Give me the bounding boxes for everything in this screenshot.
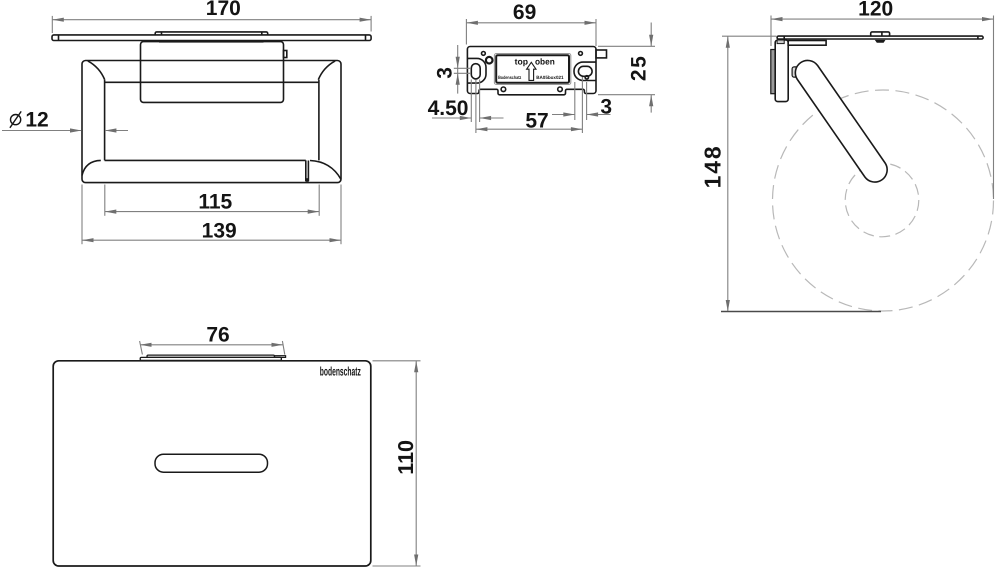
svg-text:12: 12 <box>25 109 48 132</box>
svg-text:bodenschatz: bodenschatz <box>320 365 361 379</box>
svg-text:57: 57 <box>525 110 548 133</box>
svg-text:148: 148 <box>700 145 726 189</box>
svg-text:115: 115 <box>198 190 232 213</box>
svg-text:170: 170 <box>206 0 241 20</box>
svg-text:76: 76 <box>206 323 229 346</box>
svg-text:4.50: 4.50 <box>428 97 469 120</box>
svg-text:3: 3 <box>600 96 612 119</box>
svg-text:139: 139 <box>202 220 237 243</box>
svg-text:3: 3 <box>434 67 457 79</box>
svg-text:110: 110 <box>394 440 418 475</box>
svg-text:69: 69 <box>513 1 536 24</box>
svg-text:25: 25 <box>627 55 650 81</box>
svg-text:120: 120 <box>858 0 893 20</box>
svg-text:BA05box021: BA05box021 <box>536 75 564 80</box>
svg-text:Bodenschatz: Bodenschatz <box>498 75 522 80</box>
svg-text:top: top <box>515 57 528 67</box>
svg-text:oben: oben <box>535 57 555 67</box>
